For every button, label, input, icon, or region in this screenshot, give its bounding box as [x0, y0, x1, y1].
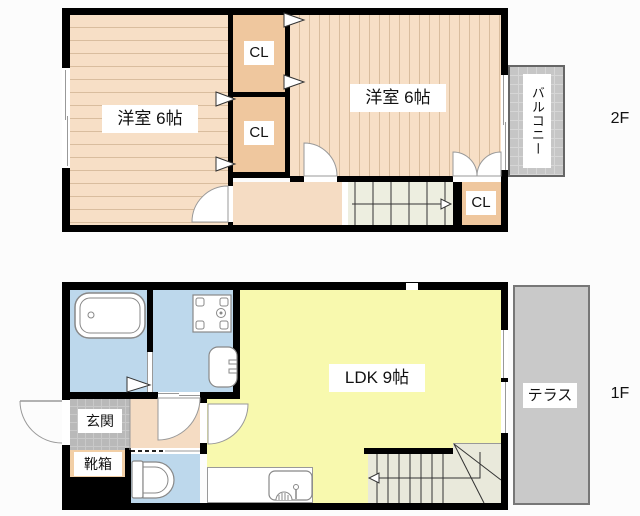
entrance-door-arc [20, 401, 62, 443]
wall [228, 92, 290, 97]
wall [62, 225, 508, 232]
ldk-door-opening [200, 403, 207, 443]
room-label-closet-3: CL [466, 191, 496, 215]
kitchen-counter [207, 467, 313, 503]
room-label-western-left: 洋室 6帖 [102, 105, 198, 133]
room-label-western-right: 洋室 6帖 [350, 84, 446, 112]
floor-label-1f: 1F [604, 383, 636, 405]
wall-gap [406, 283, 418, 290]
window-2f-left [62, 68, 70, 168]
wall [290, 176, 304, 182]
wall [453, 182, 462, 232]
staircase-2f [348, 182, 453, 225]
stair-landing-1f [453, 443, 501, 454]
washroom-floor [153, 290, 233, 392]
room-label-ldk: LDK 9帖 [329, 364, 425, 392]
wall [364, 448, 453, 454]
wall [62, 8, 508, 15]
wall [62, 392, 240, 399]
floor-label-2f: 2F [604, 108, 636, 130]
staircase-1f [368, 454, 501, 503]
closet-door-opening [453, 176, 501, 182]
toilet-floor [131, 454, 200, 503]
window-1f-terrace-upper [501, 330, 508, 378]
bathroom-floor [70, 290, 147, 392]
wall [233, 282, 240, 399]
wall [147, 290, 153, 352]
toilet-folding-door [131, 448, 165, 454]
room-label-entrance: 玄関 [78, 409, 122, 433]
wall [228, 172, 290, 178]
room-label-shoe-cabinet: 靴箱 [74, 452, 122, 476]
room-label-balcony: バルコニー [523, 74, 551, 168]
window-1f-terrace-lower [501, 382, 508, 433]
hall-1f-floor [130, 399, 200, 448]
balcony-sliding-door [501, 75, 508, 170]
washroom-door-opening [158, 392, 200, 399]
floor-plan: 洋室 6帖 洋室 6帖 CL CL CL バルコニー 2F LDK 9帖 玄関 … [0, 0, 640, 516]
hall-2f-floor [233, 182, 342, 225]
door-opening [228, 186, 233, 222]
room-label-terrace: テラス [523, 383, 577, 408]
toilet-door-opening [165, 448, 200, 454]
wall [337, 176, 453, 182]
entrance-door-opening [62, 400, 70, 445]
wall [62, 282, 508, 290]
stair-edge-gap [342, 182, 348, 225]
bath-door-opening [147, 352, 153, 392]
wall [228, 15, 233, 186]
room-label-closet-2: CL [244, 121, 274, 145]
door-opening [304, 176, 337, 182]
wall-block [62, 477, 130, 510]
room-label-closet-1: CL [244, 41, 274, 65]
